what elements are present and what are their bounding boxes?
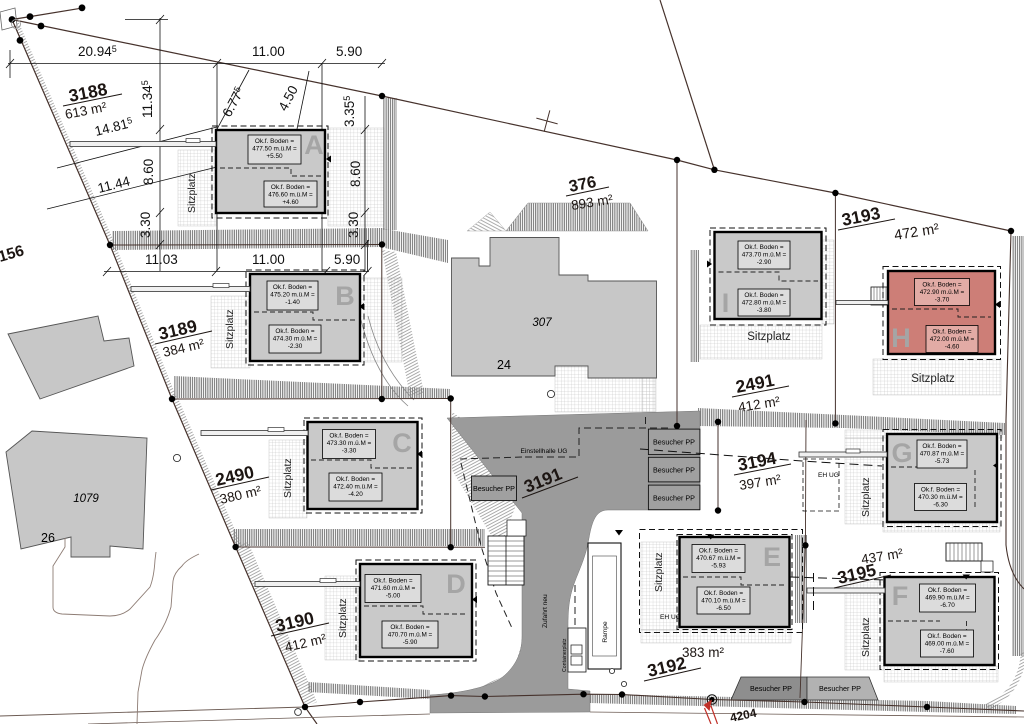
- svg-text:Ok.f. Boden =: Ok.f. Boden =: [744, 292, 784, 299]
- svg-text:Ok.f. Boden =: Ok.f. Boden =: [273, 284, 313, 291]
- svg-text:Ok.f. Boden =: Ok.f. Boden =: [927, 633, 967, 640]
- svg-text:472.00 m.ü.M =: 472.00 m.ü.M =: [930, 336, 975, 343]
- svg-text:+4.60: +4.60: [282, 199, 299, 206]
- svg-text:Ok.f. Boden =: Ok.f. Boden =: [744, 244, 784, 251]
- svg-text:24: 24: [497, 358, 511, 372]
- svg-text:471.60 m.ü.M =: 471.60 m.ü.M =: [371, 585, 416, 592]
- svg-text:8.60: 8.60: [348, 161, 363, 187]
- svg-text:-6.50: -6.50: [716, 605, 731, 612]
- svg-text:+5.50: +5.50: [266, 153, 283, 160]
- svg-text:Ok.f. Boden =: Ok.f. Boden =: [699, 548, 739, 555]
- svg-text:I: I: [722, 288, 730, 318]
- svg-text:Sitzplatz: Sitzplatz: [911, 373, 955, 385]
- svg-text:H: H: [891, 323, 911, 353]
- svg-text:Ok.f. Boden =: Ok.f. Boden =: [390, 624, 430, 631]
- svg-text:26: 26: [41, 531, 55, 545]
- svg-text:383 m²: 383 m²: [682, 645, 725, 660]
- svg-text:Ok.f. Boden =: Ok.f. Boden =: [928, 587, 968, 594]
- svg-text:-5.73: -5.73: [935, 458, 950, 465]
- svg-text:Sitzplatz: Sitzplatz: [186, 173, 198, 213]
- svg-text:Zufahrt neu: Zufahrt neu: [542, 594, 549, 628]
- svg-text:Ok.f. Boden =: Ok.f. Boden =: [932, 329, 972, 336]
- svg-text:473.70 m.ü.M =: 473.70 m.ü.M =: [742, 252, 787, 259]
- svg-text:307: 307: [532, 317, 552, 329]
- svg-text:Sitzplatz: Sitzplatz: [747, 331, 791, 343]
- svg-text:474.30 m.ü.M =: 474.30 m.ü.M =: [273, 336, 318, 343]
- svg-text:1079: 1079: [73, 493, 99, 505]
- svg-text:Sitzplatz: Sitzplatz: [282, 458, 294, 498]
- svg-text:470.30 m.ü.M =: 470.30 m.ü.M =: [918, 494, 963, 501]
- svg-text:Ok.f. Boden =: Ok.f. Boden =: [271, 184, 311, 191]
- svg-text:475.20 m.ü.M =: 475.20 m.ü.M =: [270, 292, 315, 299]
- svg-text:5.90: 5.90: [334, 252, 360, 267]
- svg-text:Besucher PP: Besucher PP: [653, 438, 695, 447]
- svg-text:Besucher PP: Besucher PP: [653, 494, 695, 503]
- svg-text:Sitzplatz: Sitzplatz: [224, 309, 236, 349]
- svg-text:Ok.f. Boden =: Ok.f. Boden =: [275, 328, 315, 335]
- svg-text:Sitzplatz: Sitzplatz: [337, 598, 349, 638]
- svg-text:Sitzplatz: Sitzplatz: [653, 552, 665, 592]
- svg-text:Ok.f. Boden =: Ok.f. Boden =: [373, 578, 413, 585]
- svg-text:B: B: [335, 281, 355, 311]
- svg-text:Besucher PP: Besucher PP: [653, 466, 695, 475]
- svg-text:477.50 m.ü.M =: 477.50 m.ü.M =: [252, 146, 297, 153]
- svg-text:-6.30: -6.30: [933, 502, 948, 509]
- svg-text:Einstellhalle UG: Einstellhalle UG: [521, 448, 568, 455]
- svg-text:C: C: [392, 428, 412, 458]
- svg-text:469.00 m.ü.M =: 469.00 m.ü.M =: [925, 641, 970, 648]
- svg-text:469.90 m.ü.M =: 469.90 m.ü.M =: [925, 595, 970, 602]
- svg-text:-5.00: -5.00: [386, 593, 401, 600]
- svg-text:11.03: 11.03: [145, 252, 178, 267]
- svg-text:-7.60: -7.60: [940, 648, 955, 655]
- svg-text:Ok.f. Boden =: Ok.f. Boden =: [336, 476, 376, 483]
- svg-text:11.345: 11.345: [140, 80, 155, 118]
- svg-text:-5.93: -5.93: [711, 563, 726, 570]
- svg-text:-3.80: -3.80: [757, 307, 772, 314]
- svg-text:G: G: [891, 438, 912, 468]
- svg-text:Besucher PP: Besucher PP: [819, 684, 861, 693]
- svg-text:-4.60: -4.60: [945, 344, 960, 351]
- svg-text:-1.40: -1.40: [285, 299, 300, 306]
- svg-text:3.30: 3.30: [346, 212, 361, 238]
- svg-text:EH UG: EH UG: [818, 472, 839, 479]
- svg-text:Sitzplatz: Sitzplatz: [860, 477, 872, 517]
- svg-text:-3.30: -3.30: [342, 448, 357, 455]
- svg-text:E: E: [763, 542, 781, 572]
- svg-text:Besucher PP: Besucher PP: [750, 684, 792, 693]
- svg-text:EH UG: EH UG: [660, 614, 681, 621]
- svg-text:472.40 m.ü.M =: 472.40 m.ü.M =: [333, 484, 378, 491]
- svg-text:A: A: [304, 130, 324, 160]
- svg-text:-6.70: -6.70: [940, 602, 955, 609]
- svg-text:472.90 m.ü.M =: 472.90 m.ü.M =: [920, 289, 965, 296]
- svg-text:5.90: 5.90: [336, 44, 362, 59]
- svg-text:Ok.f. Boden =: Ok.f. Boden =: [704, 590, 744, 597]
- svg-text:-2.90: -2.90: [757, 259, 772, 266]
- svg-text:Rampe: Rampe: [602, 621, 609, 643]
- svg-text:-2.30: -2.30: [288, 343, 303, 350]
- svg-text:3.30: 3.30: [138, 212, 153, 238]
- svg-text:D: D: [446, 569, 466, 599]
- svg-text:F: F: [892, 581, 909, 611]
- svg-text:-3.70: -3.70: [935, 297, 950, 304]
- svg-text:470.87 m.ü.M =: 470.87 m.ü.M =: [920, 451, 965, 458]
- svg-text:11.00: 11.00: [252, 252, 285, 267]
- svg-text:Sitzplatz: Sitzplatz: [860, 617, 872, 657]
- svg-text:Ok.f. Boden =: Ok.f. Boden =: [329, 433, 369, 440]
- svg-text:470.70 m.ü.M =: 470.70 m.ü.M =: [388, 632, 433, 639]
- svg-text:473.30 m.ü.M =: 473.30 m.ü.M =: [327, 440, 372, 447]
- svg-text:8.60: 8.60: [141, 159, 156, 185]
- svg-text:-5.90: -5.90: [403, 639, 418, 646]
- svg-text:Containerplatz: Containerplatz: [562, 638, 568, 672]
- svg-text:476.60 m.ü.M =: 476.60 m.ü.M =: [268, 192, 313, 199]
- svg-text:470.10 m.ü.M =: 470.10 m.ü.M =: [701, 598, 746, 605]
- svg-text:Besucher PP: Besucher PP: [473, 484, 515, 493]
- svg-text:-4.20: -4.20: [348, 491, 363, 498]
- svg-text:470.67 m.ü.M =: 470.67 m.ü.M =: [696, 555, 741, 562]
- svg-text:Ok.f. Boden =: Ok.f. Boden =: [922, 282, 962, 289]
- svg-text:472.80 m.ü.M =: 472.80 m.ü.M =: [742, 300, 787, 307]
- svg-text:Ok.f. Boden =: Ok.f. Boden =: [922, 443, 962, 450]
- svg-text:11.00: 11.00: [252, 44, 285, 59]
- svg-text:Ok.f. Boden =: Ok.f. Boden =: [255, 138, 295, 145]
- svg-text:20.945: 20.945: [78, 44, 117, 59]
- svg-text:Ok.f. Boden =: Ok.f. Boden =: [921, 487, 961, 494]
